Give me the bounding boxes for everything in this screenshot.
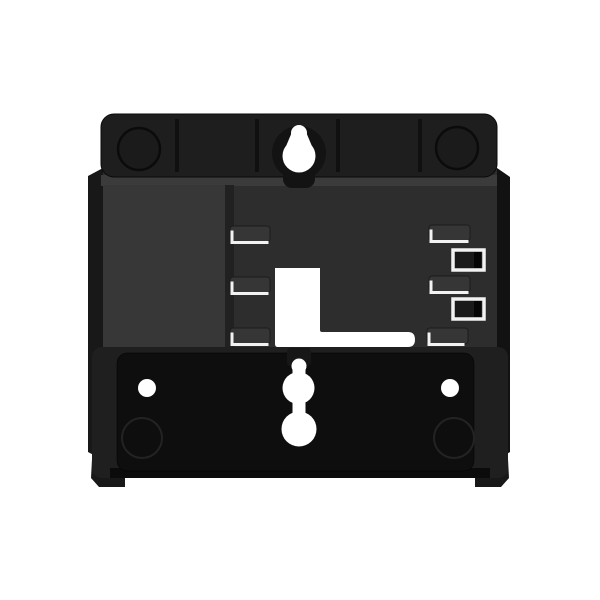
molded-circle-bottom-left [122,418,162,458]
molded-circle-top-right [436,127,478,169]
left-panel-groove [225,185,234,352]
top-bar-rib [336,119,340,172]
bottom-plate [91,347,509,487]
screw-hole-left [138,379,156,397]
top-bar [101,114,497,188]
right-slot-notch [474,252,481,268]
left-tab [230,226,270,242]
molded-circle-top-left [118,128,160,170]
right-tab [429,225,470,241]
bracket [88,114,510,487]
right-tab [427,328,468,344]
left-tab [230,328,270,344]
product-photo [0,0,600,600]
left-tab [230,277,270,293]
right-slot-notch [474,301,481,317]
screw-hole-right [441,379,459,397]
left-raised-panel [103,185,226,352]
right-tab [429,276,470,292]
bracket-illustration [0,0,600,600]
top-bar-rib [175,119,179,172]
top-bar-rib [418,119,422,172]
top-bar-rib [255,119,259,172]
molded-circle-bottom-right [434,418,474,458]
